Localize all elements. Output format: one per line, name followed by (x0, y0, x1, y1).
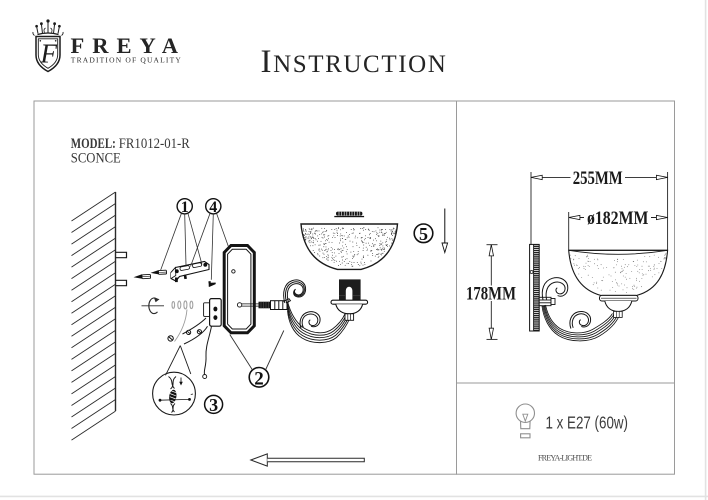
svg-text:F: F (39, 39, 57, 69)
svg-text:5: 5 (419, 224, 428, 244)
svg-text:1: 1 (181, 199, 189, 216)
svg-text:4: 4 (209, 199, 217, 216)
svg-text:FREYA: FREYA (71, 33, 179, 58)
svg-text:FR1012-01-R: FR1012-01-R (119, 136, 190, 152)
svg-text:2: 2 (254, 368, 264, 389)
svg-text:255MM: 255MM (573, 168, 623, 189)
svg-text:FREYA-LIGHT.DE: FREYA-LIGHT.DE (538, 454, 592, 463)
svg-text:1 x E27 (60w): 1 x E27 (60w) (546, 412, 629, 432)
svg-text:ø182MM: ø182MM (587, 208, 649, 229)
svg-text:3: 3 (209, 395, 218, 415)
svg-text:INSTRUCTION: INSTRUCTION (261, 44, 448, 80)
svg-text:178MM: 178MM (466, 284, 516, 305)
svg-text:SCONCE: SCONCE (71, 150, 121, 166)
